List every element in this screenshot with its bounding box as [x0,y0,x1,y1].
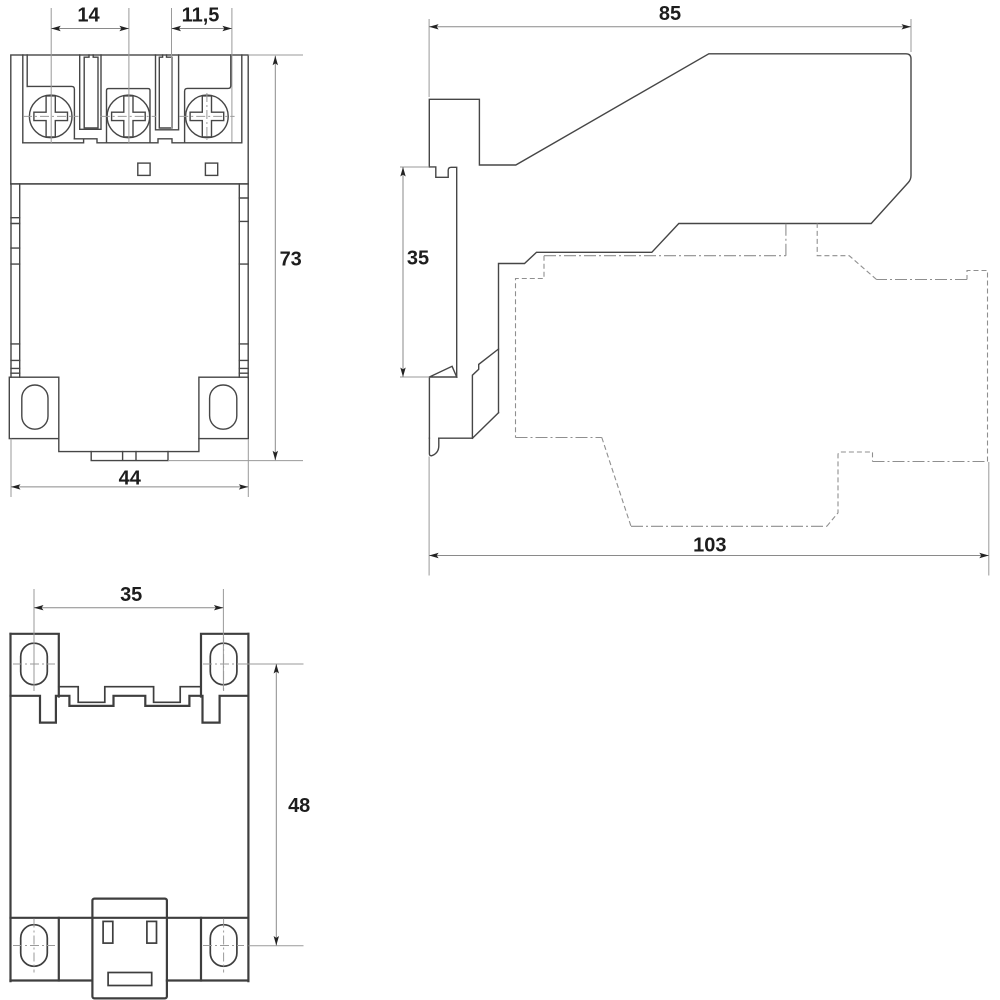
svg-text:35: 35 [407,248,429,270]
svg-text:44: 44 [119,468,142,490]
svg-text:11,5: 11,5 [182,5,220,27]
svg-text:85: 85 [659,3,681,25]
svg-text:103: 103 [693,535,726,557]
svg-text:35: 35 [120,584,142,606]
svg-text:48: 48 [288,795,310,817]
svg-text:73: 73 [280,249,302,271]
svg-text:14: 14 [77,5,100,27]
